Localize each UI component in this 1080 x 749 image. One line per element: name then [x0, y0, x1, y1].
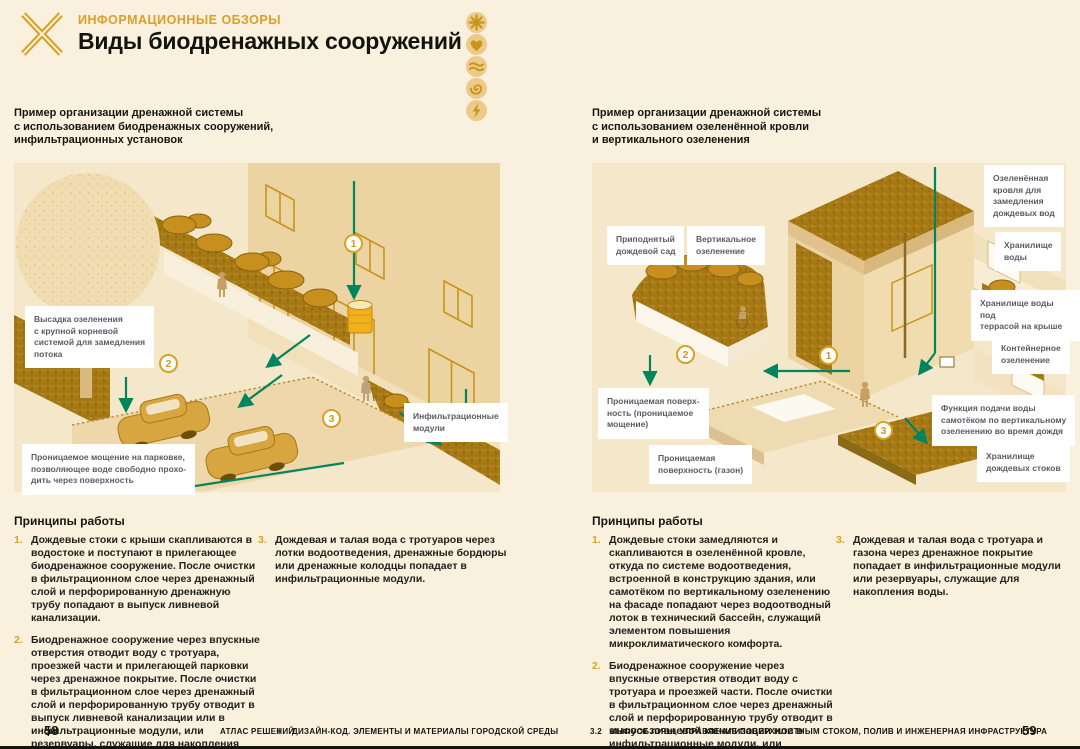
- page-title: Виды биодренажных сооружений: [78, 28, 462, 55]
- callout-planting-root-system: Высадка озеленения с крупной корневой си…: [25, 306, 154, 368]
- right-principles-col2: 3. Дождевая и талая вода с тротуара и га…: [836, 534, 1070, 608]
- principle-number: 2.: [14, 634, 26, 749]
- book-title: АТЛАС РЕШЕНИЙ: [220, 727, 294, 736]
- marker-badge: 2: [159, 354, 178, 373]
- callout-permeable-parking: Проницаемое мощение на парковке, позволя…: [22, 444, 195, 495]
- callout-vertical-greening: Вертикальное озеленение: [687, 226, 765, 265]
- left-principles-col1: 1. Дождевые стоки с крыши скапливаются в…: [14, 534, 260, 749]
- callout-stormwater-storage: Хранилище дождевых стоков: [977, 443, 1070, 482]
- drainage-outlet: [940, 357, 954, 367]
- principle-number: 1.: [14, 534, 26, 625]
- callout-container-greening: Контейнерное озеленение: [992, 335, 1070, 374]
- section-eyebrow: ИНФОРМАЦИОННЫЕ ОБЗОРЫ: [78, 13, 281, 27]
- part-number: I: [278, 727, 281, 736]
- atlas-spread: ИНФОРМАЦИОННЫЕ ОБЗОРЫ Виды биодренажных …: [0, 0, 1080, 749]
- sun-icon: [466, 12, 487, 33]
- callout-infiltration-modules: Инфильтрационные модули: [404, 403, 508, 442]
- waves-icon: [466, 56, 487, 77]
- spiral-icon: [466, 78, 487, 99]
- principle-number: 1.: [592, 534, 604, 651]
- raised-rain-garden: [632, 255, 768, 367]
- left-intro-text: Пример организации дренажной системы с и…: [14, 107, 273, 148]
- heart-icon: [466, 34, 487, 55]
- principle-text: Дождевые стоки с крыши скапливаются в во…: [31, 534, 260, 625]
- callout-green-roof: Озеленённая кровля для замедления дождев…: [984, 165, 1064, 227]
- lightning-icon: [466, 100, 487, 121]
- left-principles-col2: 3. Дождевая и талая вода с тротуаров чер…: [258, 534, 510, 595]
- right-page-number: 59: [1022, 723, 1036, 738]
- marker-badge: 1: [344, 234, 363, 253]
- callout-raised-rain-garden: Приподнятый дождевой сад: [607, 226, 684, 265]
- callout-permeable-paving: Проницаемая поверх- ность (проницаемое м…: [598, 388, 709, 439]
- marker-badge: 1: [819, 346, 838, 365]
- left-principles-heading: Принципы работы: [14, 514, 125, 528]
- right-principles-col1: 1. Дождевые стоки замедляются и скаплива…: [592, 534, 836, 749]
- left-page-number: 58: [44, 723, 58, 738]
- callout-permeable-lawn: Проницаемая поверхность (газон): [649, 445, 752, 484]
- principle-item: 3. Дождевая и талая вода с тротуаров чер…: [258, 534, 510, 586]
- principle-text: Дождевая и талая вода с тротуара и газон…: [853, 534, 1070, 599]
- rain-barrel: [348, 301, 372, 334]
- callout-water-storage-terrace: Хранилище воды под террасой на крыше: [971, 290, 1080, 341]
- callout-water-storage: Хранилище воды: [995, 232, 1061, 271]
- atlas-logo-icon: [18, 11, 66, 57]
- tree: [14, 173, 160, 431]
- principle-text: Дождевая и талая вода с тротуаров через …: [275, 534, 510, 586]
- principle-text: Дождевые стоки замедляются и скапливаютс…: [609, 534, 836, 651]
- principle-item: 3. Дождевая и талая вода с тротуара и га…: [836, 534, 1070, 599]
- part-title: ДИЗАЙН-КОД. ЭЛЕМЕНТЫ И МАТЕРИАЛЫ ГОРОДСК…: [292, 727, 558, 736]
- principle-item: 1. Дождевые стоки с крыши скапливаются в…: [14, 534, 260, 625]
- marker-badge: 2: [676, 345, 695, 364]
- principle-item: 1. Дождевые стоки замедляются и скаплива…: [592, 534, 836, 651]
- section-number: 3.2: [590, 727, 602, 736]
- marker-badge: 3: [874, 421, 893, 440]
- right-intro-text: Пример организации дренажной системы с и…: [592, 107, 821, 148]
- right-principles-heading: Принципы работы: [592, 514, 703, 528]
- principle-number: 3.: [836, 534, 848, 599]
- theme-icon-stack: [466, 12, 487, 121]
- marker-badge: 3: [322, 409, 341, 428]
- section-title: ИНФООБЗОРЫ, УПРАВЛЕНИЕ ПОВЕРХНОСТНЫМ СТО…: [611, 727, 1047, 736]
- callout-gravity-water-supply: Функция подачи воды самотёком по вертика…: [932, 395, 1075, 446]
- principle-number: 3.: [258, 534, 270, 586]
